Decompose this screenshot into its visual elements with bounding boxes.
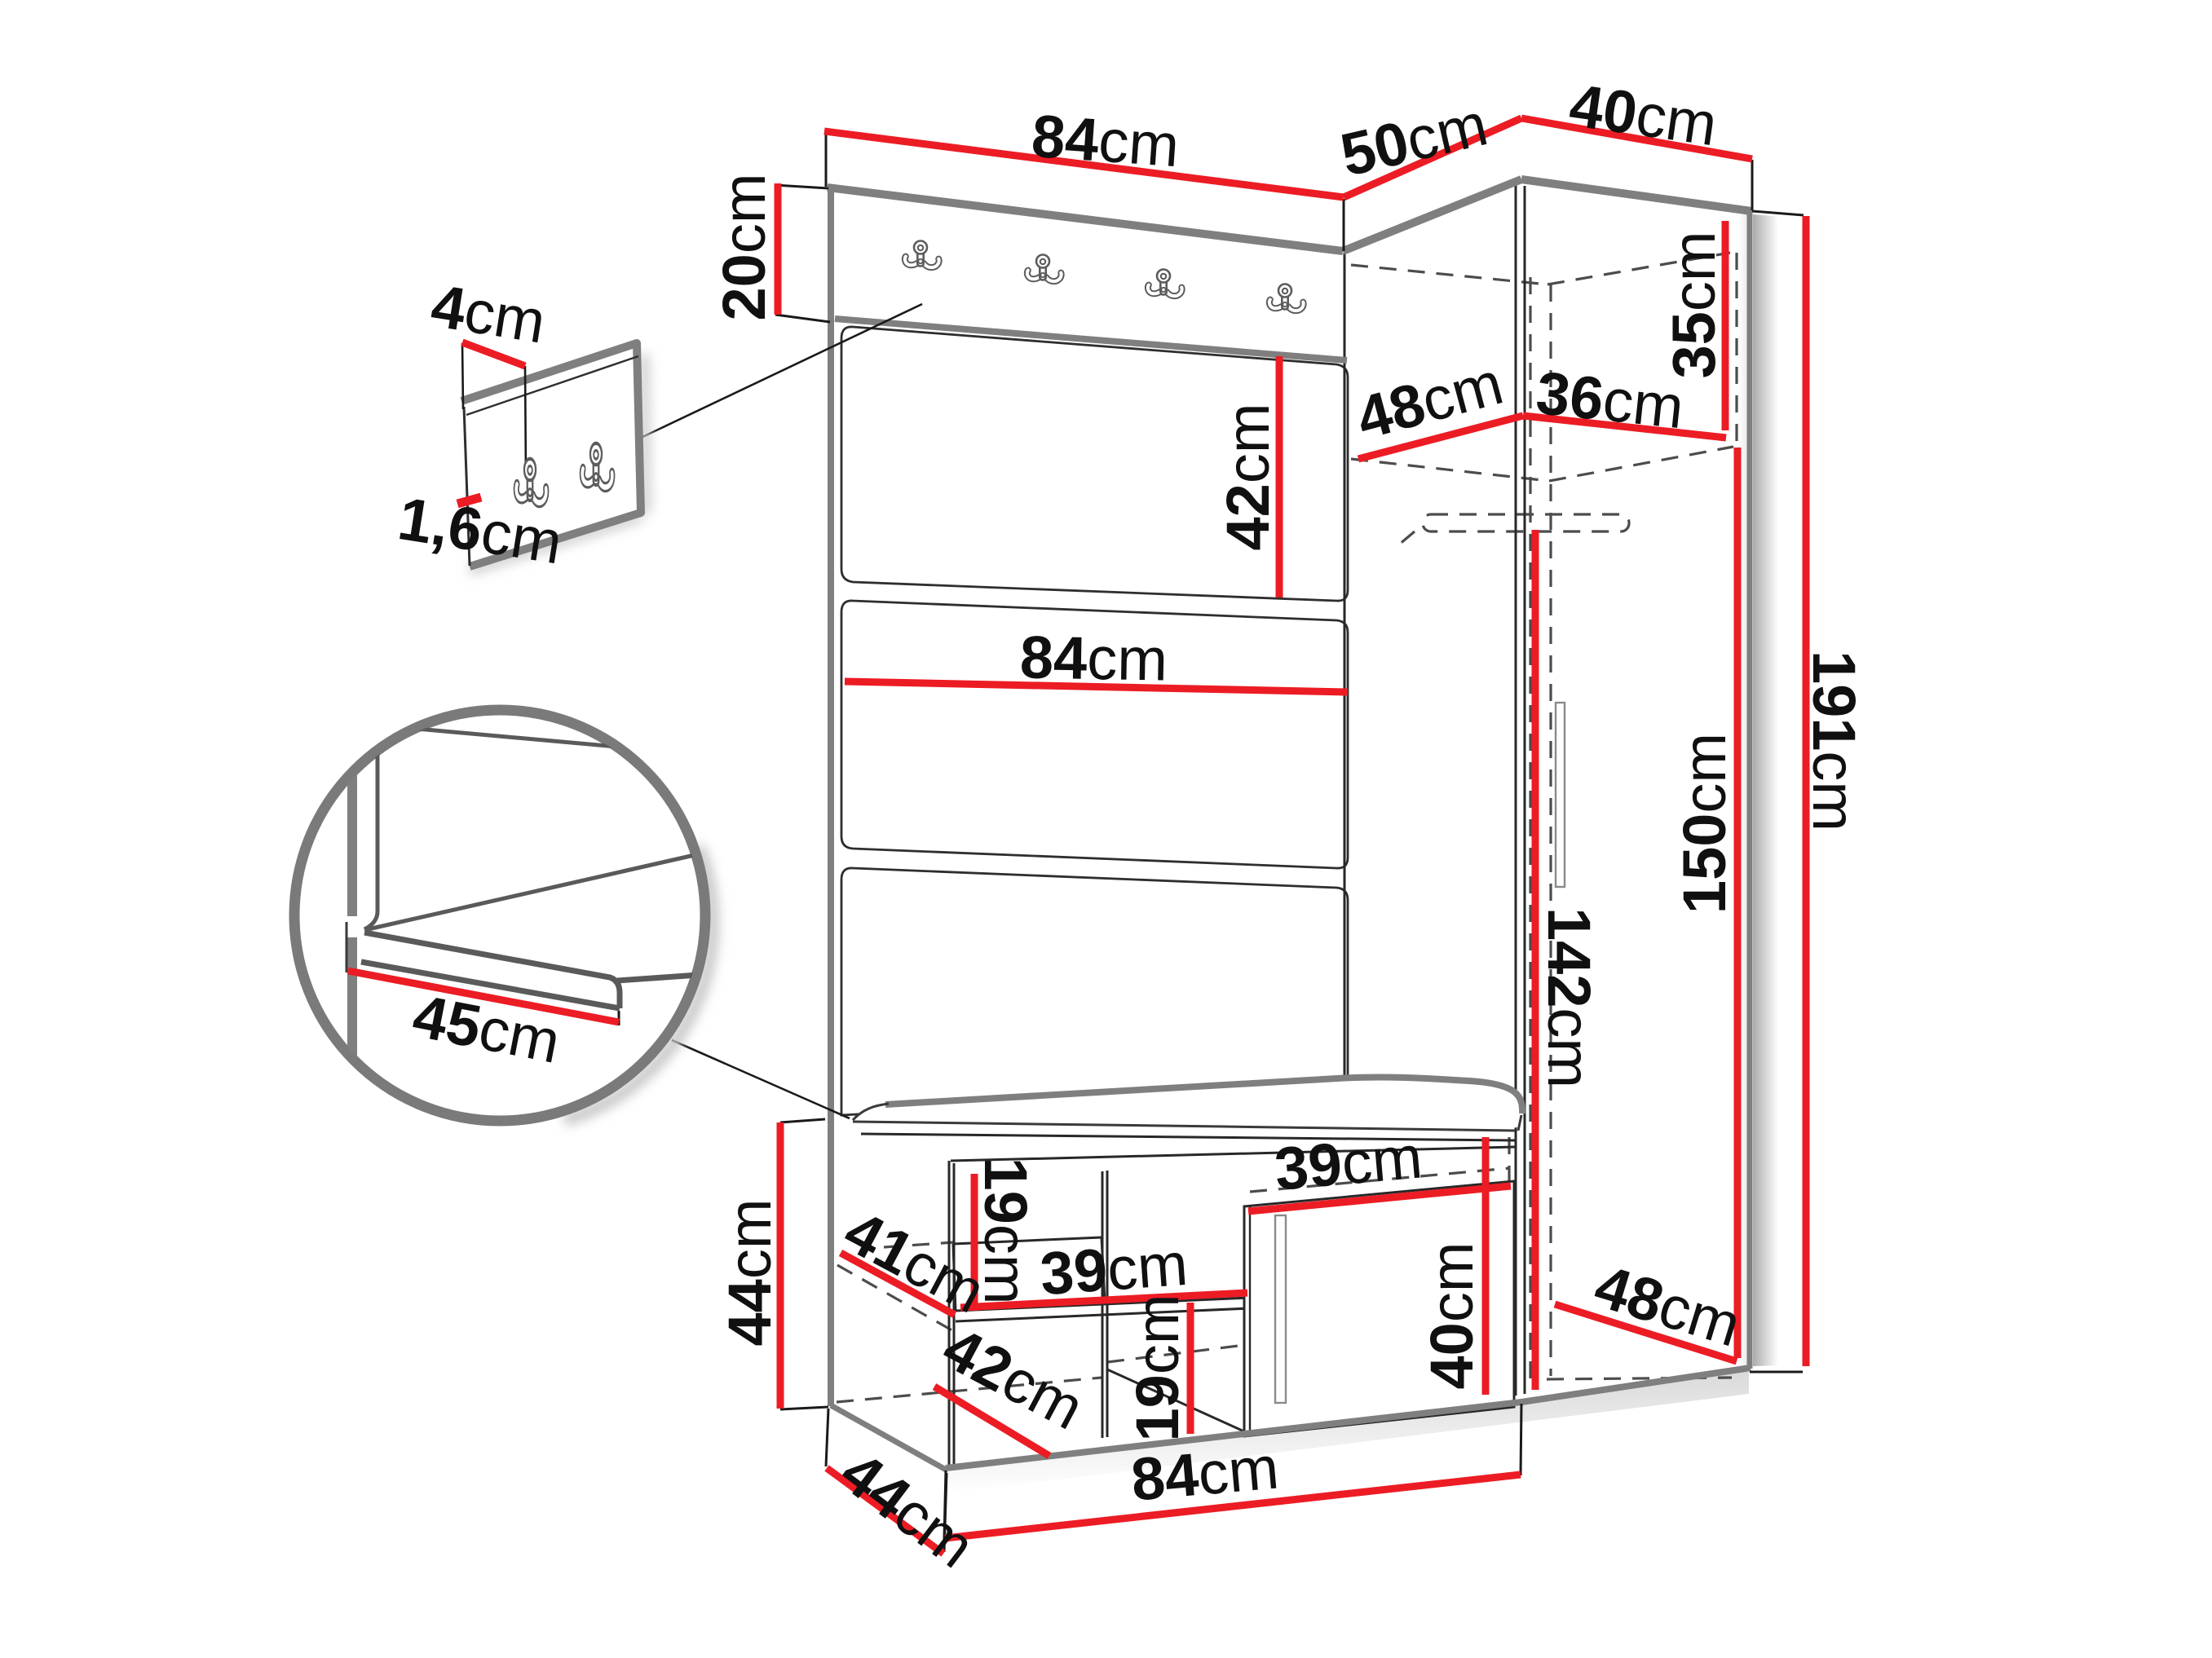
svg-text:40cm: 40cm	[1418, 1242, 1486, 1390]
svg-text:19cm: 19cm	[972, 1158, 1040, 1305]
svg-text:191cm: 191cm	[1800, 650, 1868, 831]
svg-text:35cm: 35cm	[1660, 232, 1728, 379]
svg-text:84cm: 84cm	[1019, 623, 1168, 693]
svg-text:142cm: 142cm	[1535, 907, 1603, 1088]
svg-text:19cm: 19cm	[1124, 1294, 1191, 1442]
svg-text:44cm: 44cm	[716, 1199, 784, 1347]
svg-text:84cm: 84cm	[1128, 1433, 1282, 1513]
svg-text:20cm: 20cm	[710, 174, 778, 321]
svg-text:39cm: 39cm	[1272, 1122, 1425, 1202]
svg-text:42cm: 42cm	[1214, 403, 1282, 551]
svg-text:84cm: 84cm	[1030, 102, 1181, 179]
svg-text:150cm: 150cm	[1671, 733, 1738, 914]
